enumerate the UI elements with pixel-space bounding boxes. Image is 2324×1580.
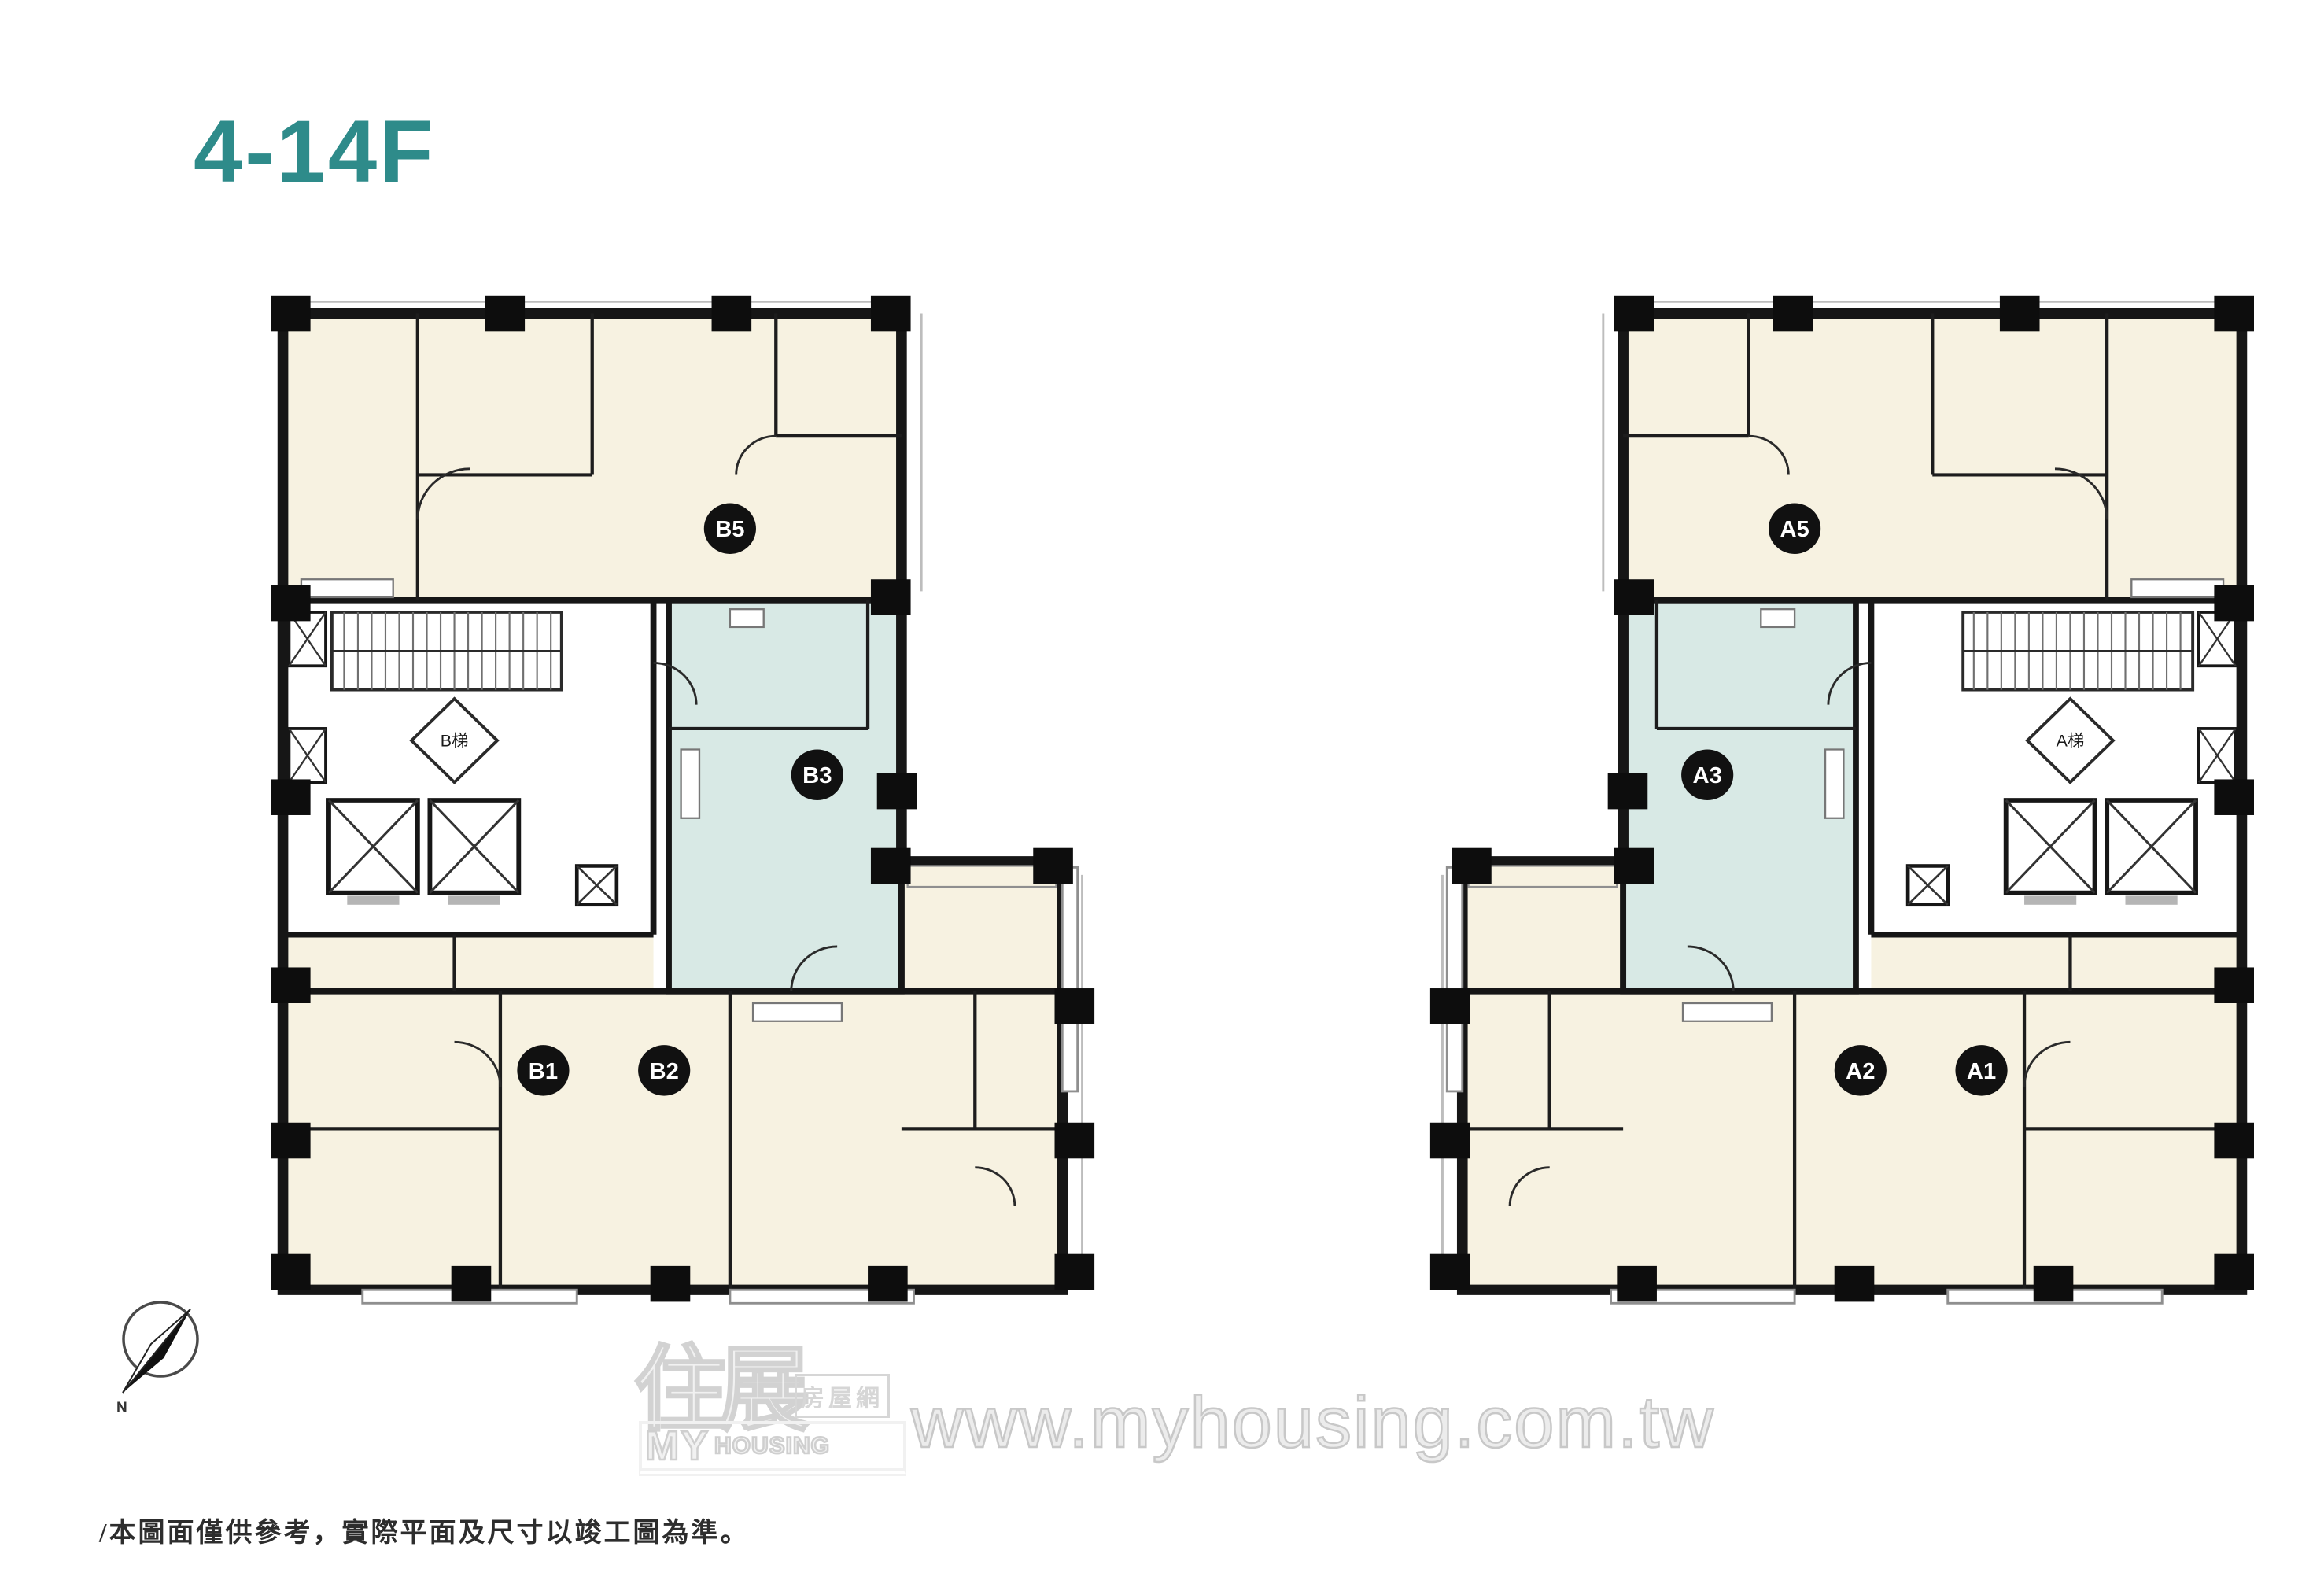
compass-north-label: N (116, 1400, 127, 1416)
unit-label-B1: B1 (529, 1059, 558, 1084)
disclaimer-text: /本圖面僅供參考，實際平面及尺寸以竣工圖為準。 (99, 1511, 749, 1549)
myhousing-watermark-logo: 住展 房屋網 MY HOUSING (639, 1327, 910, 1484)
logo-zh-sub: 房屋網 (795, 1374, 890, 1418)
compass-icon: N (109, 1292, 227, 1422)
unit-label-A1: A1 (1967, 1059, 1996, 1084)
watermark-site-url: www.myhousing.com.tw (911, 1382, 1715, 1464)
stair-core-label: B梯 (441, 732, 469, 751)
unit-label-A3: A3 (1693, 764, 1722, 789)
unit-label-B5: B5 (715, 517, 744, 542)
compass-needle-light (123, 1309, 190, 1393)
floor-plan-building-b: B5B3B1B2B梯 (271, 293, 1097, 1308)
logo-en-band: MY HOUSING (639, 1421, 906, 1476)
unit-label-A5: A5 (1780, 517, 1809, 542)
unit-label-A2: A2 (1846, 1059, 1875, 1084)
floor-range-title: 4-14F (194, 101, 436, 202)
floor-plan-building-a: A5A3A2A1A梯 (1427, 293, 2254, 1308)
page-canvas: 4-14F B5B3B1B2B梯 A5A3A2A1A梯 N 住展 房屋網 MY … (0, 0, 2324, 1580)
unit-label-B3: B3 (802, 764, 832, 789)
logo-en-my: MY (645, 1423, 710, 1470)
stair-core-label: A梯 (2057, 732, 2085, 751)
unit-label-B2: B2 (650, 1059, 679, 1084)
logo-en-housing: HOUSING (714, 1433, 830, 1460)
